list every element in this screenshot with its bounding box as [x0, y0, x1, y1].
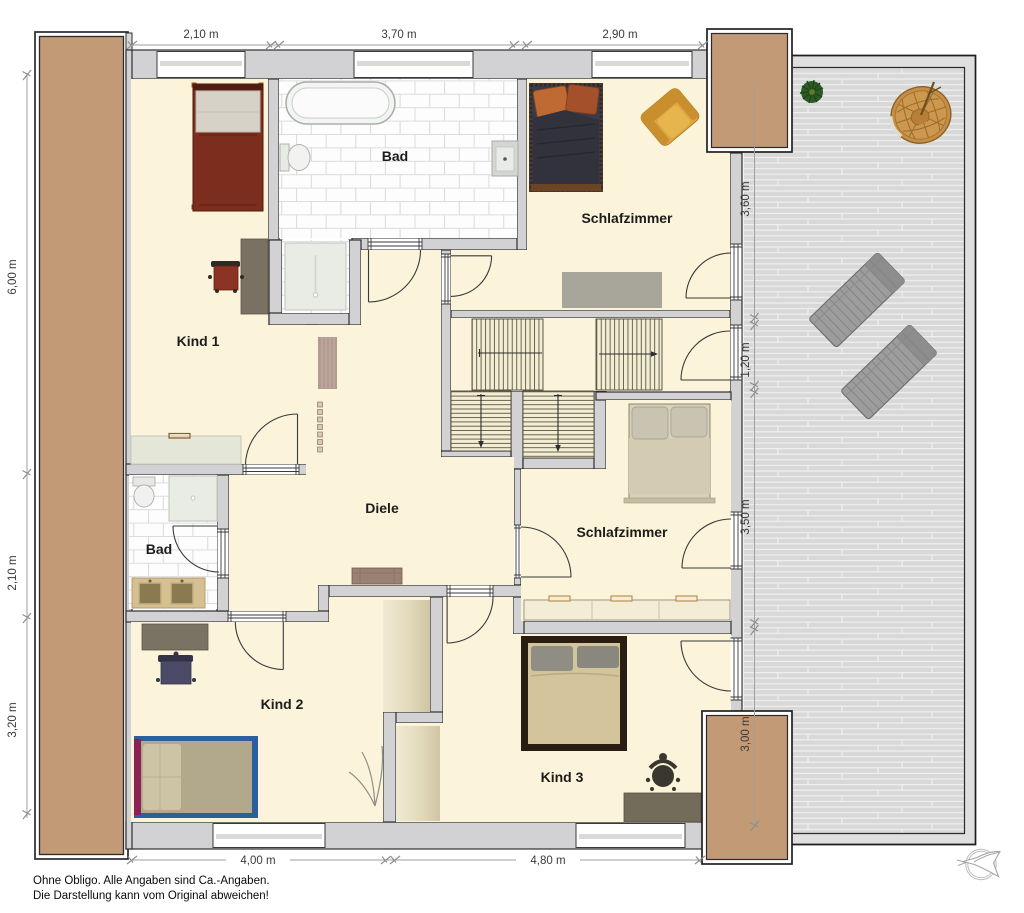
svg-text:3,60 m: 3,60 m	[740, 181, 752, 216]
svg-text:Die Darstellung kann vom Origi: Die Darstellung kann vom Original abweic…	[33, 890, 269, 902]
svg-text:2,10 m: 2,10 m	[183, 29, 218, 41]
svg-text:3,00 m: 3,00 m	[740, 716, 752, 751]
svg-text:4,00 m: 4,00 m	[240, 855, 275, 867]
svg-text:Ohne Obligo. Alle Angaben sind: Ohne Obligo. Alle Angaben sind Ca.-Angab…	[33, 875, 270, 887]
svg-text:1,20 m: 1,20 m	[740, 342, 752, 377]
svg-text:3,50 m: 3,50 m	[740, 499, 752, 534]
svg-text:6,00 m: 6,00 m	[7, 259, 19, 294]
svg-text:Kind 3: Kind 3	[541, 769, 584, 785]
svg-text:3,20 m: 3,20 m	[7, 702, 19, 737]
svg-text:Diele: Diele	[365, 500, 399, 516]
svg-text:Bad: Bad	[146, 541, 172, 557]
svg-text:Bad: Bad	[382, 148, 408, 164]
svg-text:4,80 m: 4,80 m	[530, 855, 565, 867]
svg-text:2,90 m: 2,90 m	[602, 29, 637, 41]
svg-text:Schlafzimmer: Schlafzimmer	[581, 210, 673, 226]
svg-text:Kind 2: Kind 2	[261, 696, 304, 712]
svg-text:Schlafzimmer: Schlafzimmer	[576, 524, 668, 540]
svg-text:2,10 m: 2,10 m	[7, 555, 19, 590]
svg-text:3,70 m: 3,70 m	[381, 29, 416, 41]
svg-text:Kind 1: Kind 1	[177, 333, 220, 349]
